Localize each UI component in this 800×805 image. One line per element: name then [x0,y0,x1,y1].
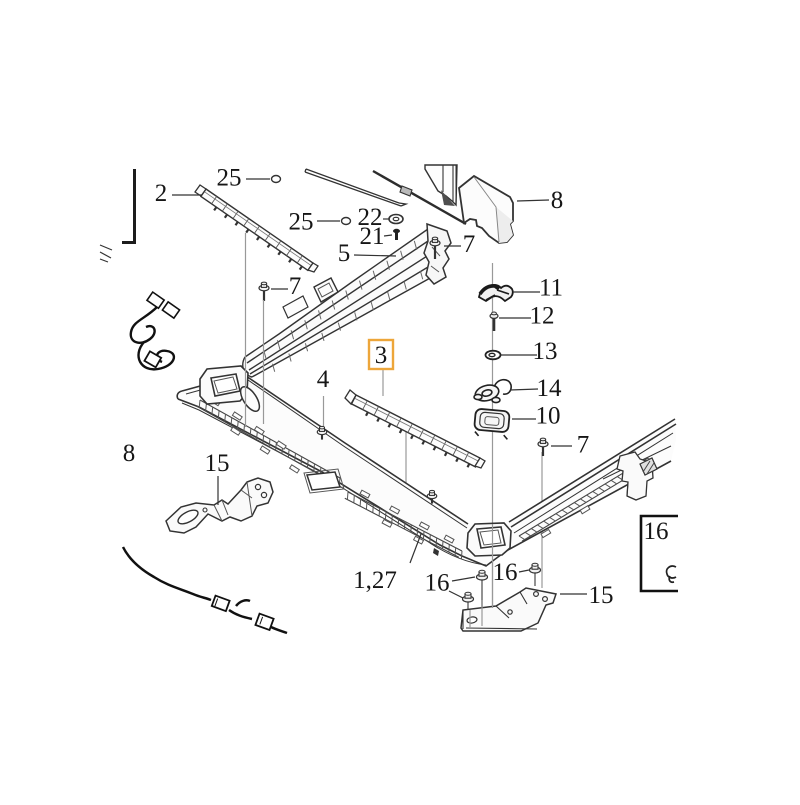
svg-text:15: 15 [589,582,614,609]
svg-text:1,27: 1,27 [353,567,397,594]
svg-text:15: 15 [205,450,230,477]
svg-text:25: 25 [289,209,314,236]
svg-text:13: 13 [533,338,558,365]
svg-text:7: 7 [577,432,590,459]
svg-text:11: 11 [539,275,563,302]
svg-text:7: 7 [289,273,302,300]
svg-text:8: 8 [551,187,564,214]
svg-text:16: 16 [493,559,518,586]
svg-text:16: 16 [425,570,450,597]
svg-text:4: 4 [317,366,330,393]
svg-text:8: 8 [123,440,136,467]
svg-text:7: 7 [463,231,476,258]
svg-text:5: 5 [338,240,351,267]
svg-text:2: 2 [155,180,168,207]
svg-text:14: 14 [537,375,563,402]
svg-text:3: 3 [375,342,388,369]
svg-text:12: 12 [530,303,555,330]
svg-text:21: 21 [360,223,385,250]
svg-text:25: 25 [217,165,242,192]
svg-text:16: 16 [644,518,669,545]
svg-text:10: 10 [536,403,561,430]
